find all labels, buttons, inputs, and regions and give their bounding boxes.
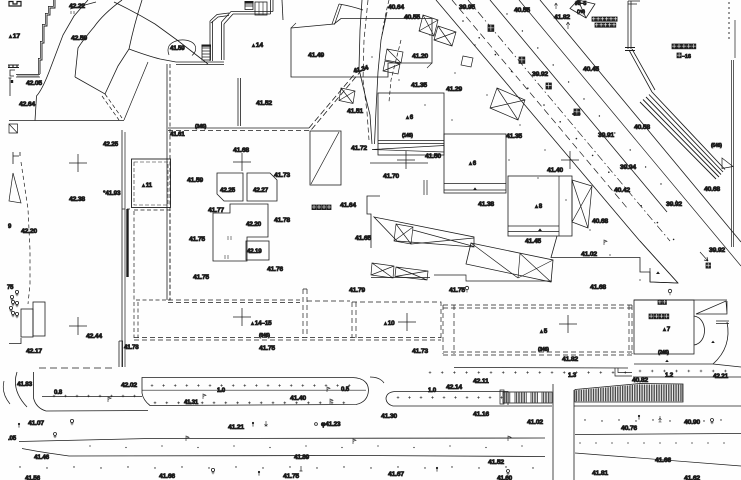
svg-text:▲10: ▲10 (383, 320, 395, 327)
svg-text:41.59: 41.59 (187, 177, 203, 184)
svg-text:42.20: 42.20 (21, 228, 37, 235)
svg-text:41.49: 41.49 (308, 52, 324, 59)
svg-text:41.67: 41.67 (388, 471, 404, 478)
svg-text:42.11: 42.11 (473, 378, 489, 385)
svg-text:39.94: 39.94 (620, 164, 636, 171)
svg-text:40.64: 40.64 (388, 4, 404, 11)
svg-text:41.78: 41.78 (124, 344, 139, 351)
svg-text:41.30: 41.30 (381, 413, 397, 420)
svg-text:41.79: 41.79 (349, 287, 365, 294)
svg-text:41.72: 41.72 (351, 145, 367, 152)
svg-text:41.60: 41.60 (497, 475, 513, 480)
svg-text:41.38: 41.38 (478, 201, 494, 208)
svg-text:41.61: 41.61 (170, 131, 185, 138)
svg-text:(346): (346) (195, 124, 207, 130)
svg-text:41.75: 41.75 (189, 236, 205, 243)
svg-text:▲14–15: ▲14–15 (250, 320, 272, 327)
svg-text:▲7: ▲7 (662, 326, 671, 333)
svg-text:41.75: 41.75 (283, 473, 299, 480)
svg-text:39.91: 39.91 (598, 132, 614, 139)
svg-text:41.29: 41.29 (446, 86, 462, 93)
svg-text:40.55: 40.55 (404, 14, 420, 21)
svg-text:41.02: 41.02 (527, 419, 543, 426)
svg-text:41.66: 41.66 (655, 457, 671, 464)
svg-text:75: 75 (7, 285, 14, 291)
svg-text:(346): (346) (538, 347, 549, 353)
svg-text:▲6: ▲6 (468, 160, 477, 167)
svg-text:φ41.23: φ41.23 (321, 421, 341, 428)
svg-text:▲17: ▲17 (8, 33, 20, 40)
svg-text:42.44: 42.44 (86, 333, 102, 340)
svg-text:42.25: 42.25 (103, 141, 119, 148)
svg-text:42.19: 42.19 (247, 248, 262, 255)
svg-text:▲8: ▲8 (534, 203, 543, 210)
svg-text:39.92: 39.92 (666, 201, 682, 208)
svg-text:42.64: 42.64 (19, 101, 35, 108)
svg-text:42.25: 42.25 (220, 187, 236, 194)
svg-text:42.05: 42.05 (26, 80, 42, 87)
svg-text:41.76: 41.76 (267, 266, 283, 273)
svg-text:41.66: 41.66 (159, 473, 175, 480)
svg-text:–16: –16 (682, 54, 691, 60)
svg-text:40.76: 40.76 (621, 425, 637, 432)
svg-text:41.68: 41.68 (233, 147, 249, 154)
svg-text:41.59: 41.59 (170, 45, 185, 52)
svg-text:42.38: 42.38 (69, 196, 85, 203)
svg-text:40.42: 40.42 (614, 187, 630, 194)
svg-text:#8–5: #8–5 (575, 1, 586, 7)
svg-text:(146): (146) (402, 133, 413, 139)
svg-text:41.21: 41.21 (228, 424, 244, 431)
svg-text:41.75: 41.75 (193, 274, 209, 281)
svg-text:(546): (546) (711, 143, 722, 149)
svg-text:▲11: ▲11 (141, 182, 153, 189)
svg-text:(246): (246) (658, 350, 669, 356)
svg-text:41.40: 41.40 (547, 167, 563, 174)
svg-text:▲5: ▲5 (539, 328, 548, 335)
svg-text:41.70: 41.70 (383, 173, 399, 180)
svg-text:▲14: ▲14 (251, 42, 263, 49)
svg-text:41.82: 41.82 (554, 14, 570, 21)
svg-text:(7#): (7#) (577, 9, 585, 15)
svg-text:41.35: 41.35 (506, 133, 522, 140)
svg-text:42.02: 42.02 (121, 382, 137, 389)
svg-text:41.46: 41.46 (34, 454, 50, 461)
svg-text:1.0: 1.0 (217, 387, 226, 394)
svg-text:41.75: 41.75 (259, 345, 275, 352)
svg-text:41.31: 41.31 (184, 400, 199, 406)
svg-text:41.16: 41.16 (473, 411, 489, 418)
svg-text:42.27: 42.27 (253, 187, 269, 194)
svg-text:39.92: 39.92 (709, 247, 725, 254)
svg-text:41.82: 41.82 (562, 356, 578, 363)
svg-text:41.65: 41.65 (355, 235, 371, 242)
svg-text:41.77: 41.77 (208, 207, 224, 214)
svg-text:41.40: 41.40 (290, 395, 306, 402)
svg-text:41.45: 41.45 (525, 238, 541, 245)
svg-text:41.50: 41.50 (425, 153, 441, 160)
svg-text:°41.93: °41.93 (103, 189, 121, 197)
svg-text:41.64: 41.64 (340, 202, 356, 209)
svg-text:1.2: 1.2 (665, 372, 674, 379)
svg-text:41.07: 41.07 (28, 420, 44, 427)
svg-text:40.68: 40.68 (592, 218, 608, 225)
svg-text:41.73: 41.73 (274, 172, 290, 179)
svg-text:39.95: 39.95 (459, 4, 475, 11)
svg-text:.05: .05 (8, 435, 17, 442)
svg-text:0.5: 0.5 (341, 386, 350, 393)
svg-text:41.78: 41.78 (274, 217, 290, 224)
svg-text:41.73: 41.73 (412, 348, 428, 355)
svg-text:41.35: 41.35 (411, 82, 427, 89)
svg-text:1.0: 1.0 (428, 387, 437, 394)
svg-text:40.55: 40.55 (514, 7, 530, 14)
svg-text:42.17: 42.17 (26, 348, 42, 355)
svg-text:1.3: 1.3 (568, 372, 577, 379)
svg-text:41.51: 41.51 (347, 108, 363, 115)
svg-text:40.68: 40.68 (704, 186, 720, 193)
svg-text:41.02: 41.02 (581, 251, 597, 258)
svg-text:41.52: 41.52 (488, 459, 504, 466)
svg-text:42.14: 42.14 (446, 384, 462, 391)
svg-text:41.83: 41.83 (17, 381, 33, 388)
svg-text:42.20: 42.20 (246, 221, 262, 228)
svg-text:41.81: 41.81 (592, 470, 608, 477)
svg-text:41.75: 41.75 (449, 287, 465, 294)
svg-text:41.89: 41.89 (294, 454, 310, 461)
svg-text:40.58: 40.58 (634, 124, 650, 131)
svg-text:42.21: 42.21 (713, 373, 729, 380)
svg-text:41.52: 41.52 (256, 100, 272, 107)
svg-text:39.92: 39.92 (532, 71, 548, 78)
svg-text:40.82: 40.82 (632, 377, 648, 384)
svg-text:41.68: 41.68 (590, 284, 606, 291)
svg-text:41.62: 41.62 (684, 475, 700, 480)
svg-text:40.45: 40.45 (583, 66, 599, 73)
svg-text:0.8: 0.8 (54, 389, 63, 396)
svg-text:▲6: ▲6 (405, 114, 414, 121)
svg-text:41.20: 41.20 (412, 53, 428, 60)
svg-text:(646): (646) (259, 333, 270, 339)
svg-text:41.56: 41.56 (25, 475, 41, 480)
